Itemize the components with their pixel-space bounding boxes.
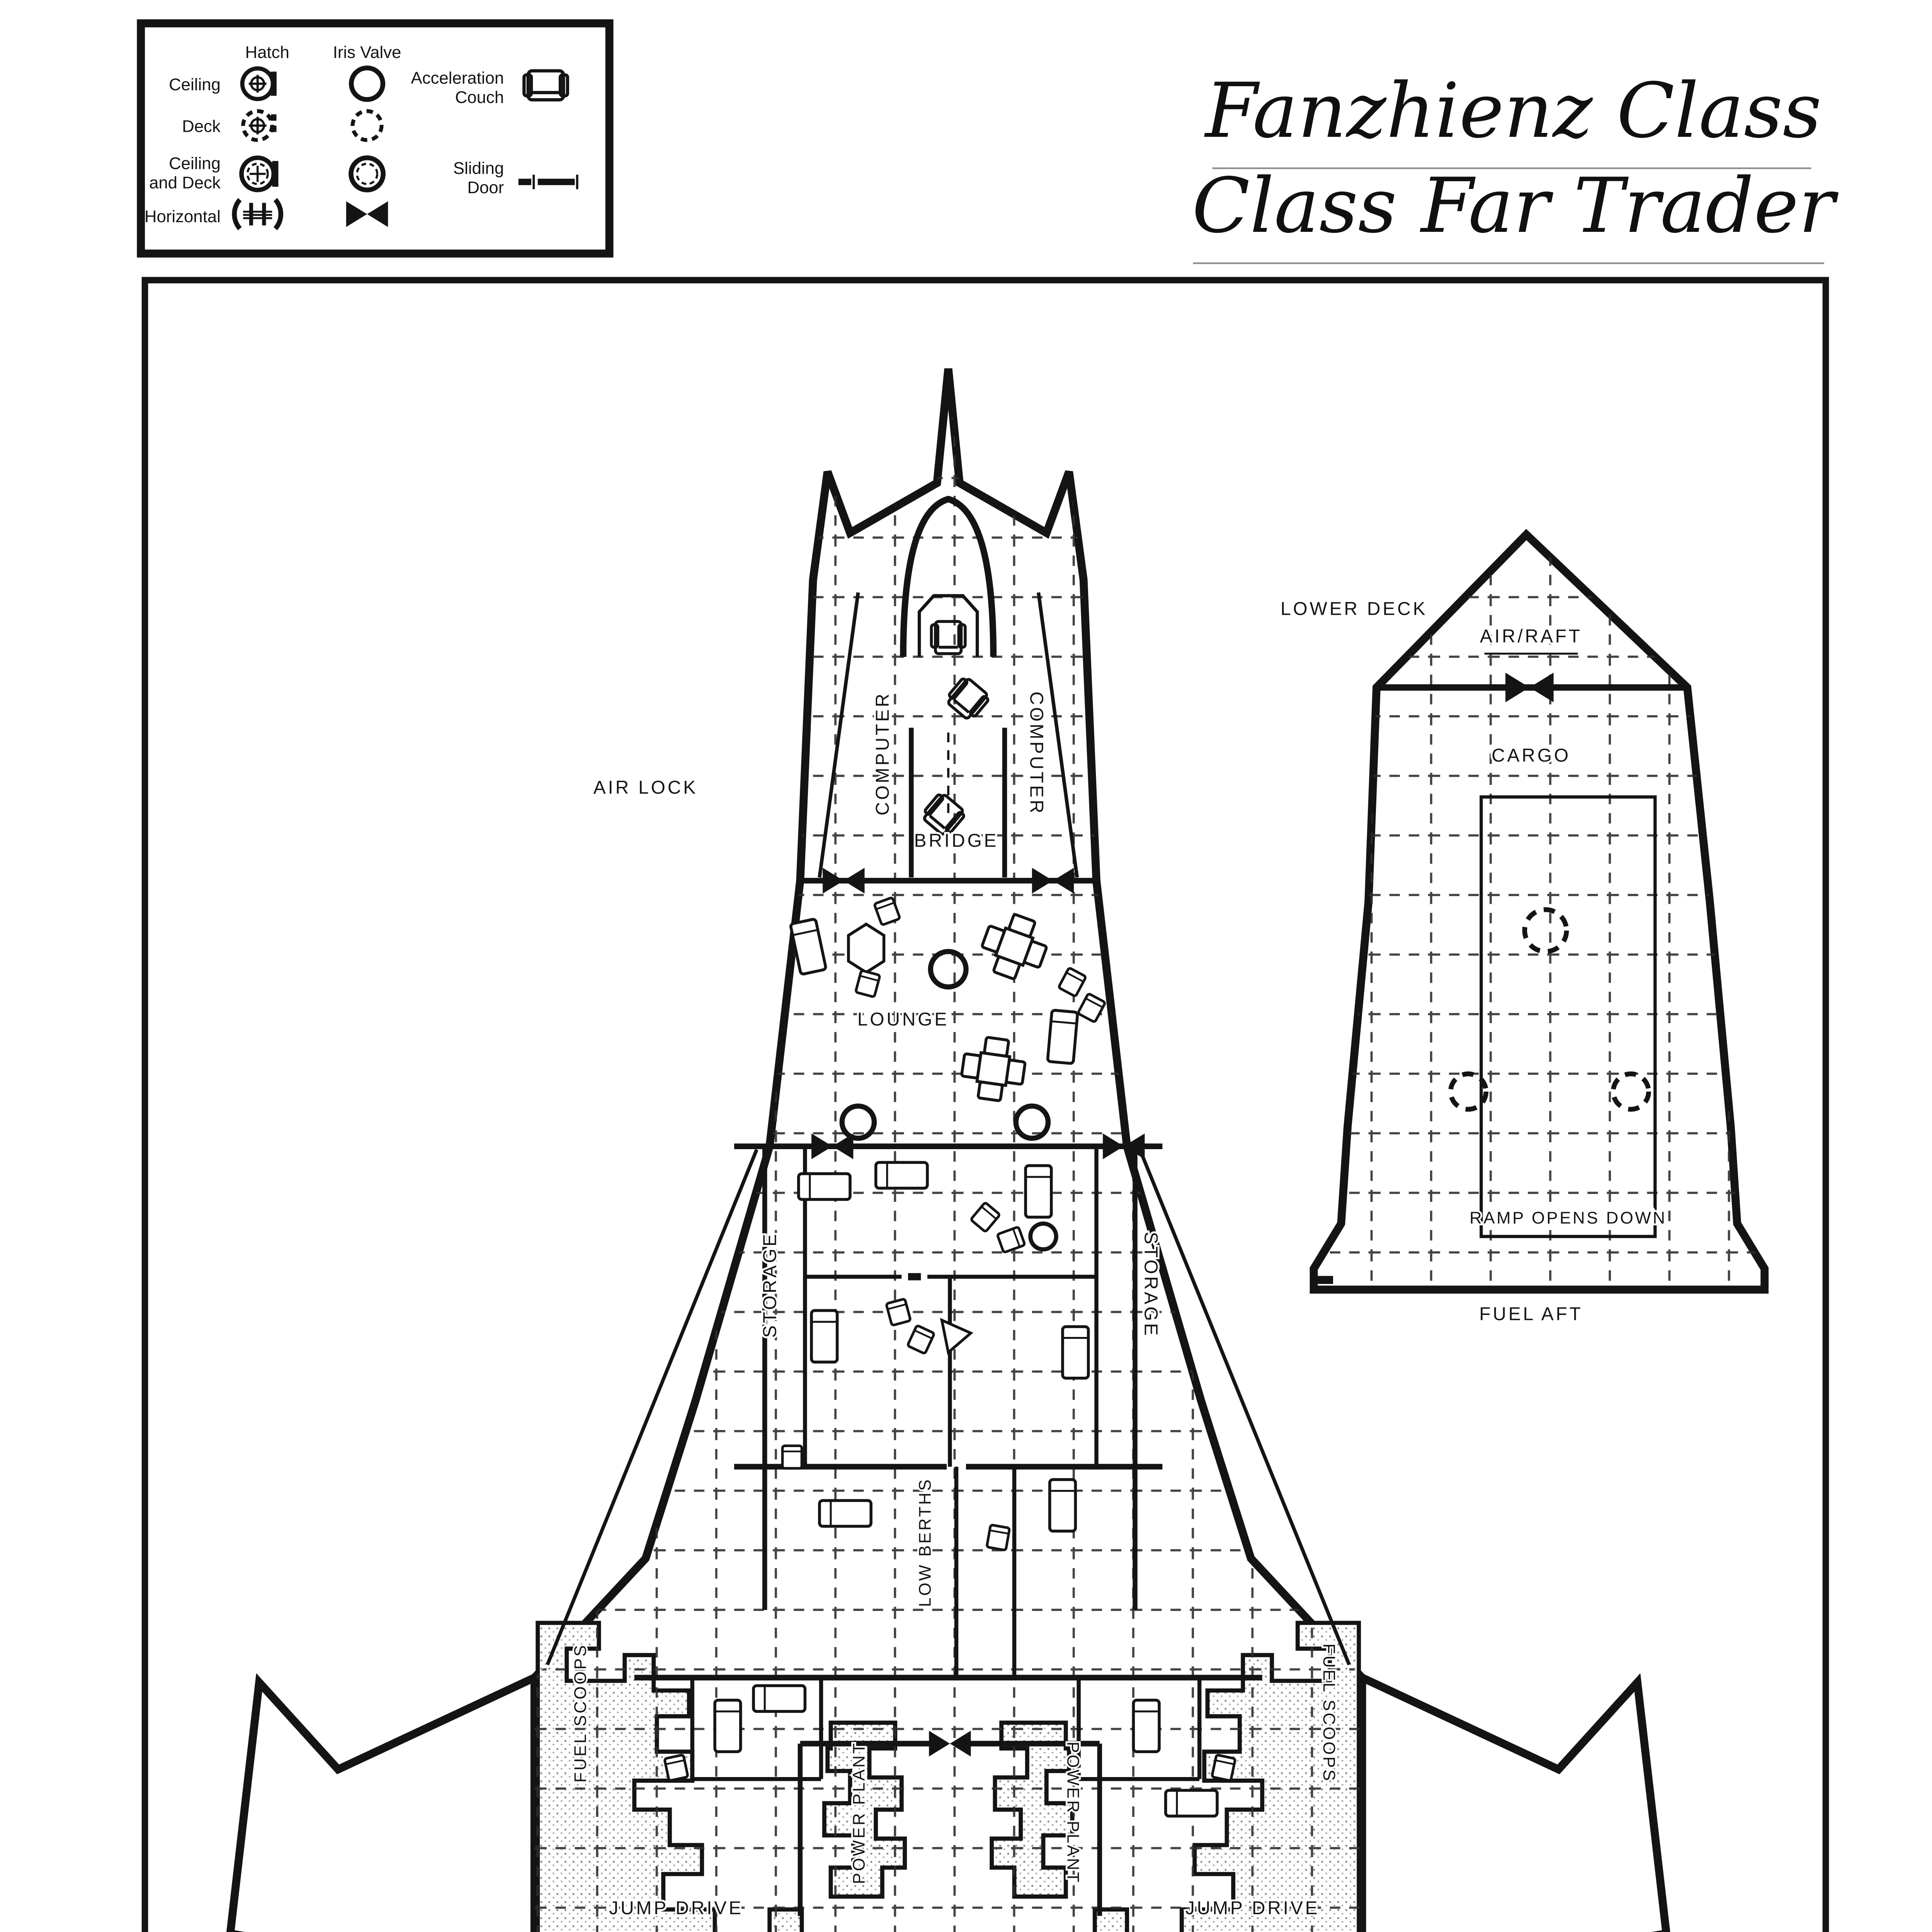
- air-lock-label: AIR LOCK: [594, 777, 698, 798]
- computer-right-label: COMPUTER: [1026, 692, 1047, 816]
- low-berths-label: LOW BERTHS: [915, 1478, 934, 1607]
- right-wing-outline: [1362, 1678, 1667, 1932]
- storage-right-label: STORAGE: [1141, 1232, 1161, 1338]
- lounge-sofa-icon: [1048, 1010, 1078, 1064]
- storage-left-label: STORAGE: [760, 1232, 780, 1338]
- lounge-label: LOUNGE: [857, 1009, 949, 1030]
- lower-deck-label: LOWER DECK: [1281, 599, 1427, 619]
- scanned-deck-plan-page: Fanzhienz Class Class Far Trader Hatch I…: [0, 0, 1932, 1932]
- power-plant-left-label: POWER PLANT: [850, 1742, 869, 1884]
- power-plant-right-label: POWER PLANT: [1064, 1742, 1083, 1884]
- bridge-label: BRIDGE: [914, 831, 999, 851]
- deck-plan-svg: AIR LOCK COMPUTER COMPUTER BRIDGE LOUNGE…: [0, 0, 1932, 1932]
- jump-drive-left-label: JUMP DRIVE: [609, 1898, 743, 1918]
- fuel-aft-label: FUEL AFT: [1479, 1304, 1583, 1325]
- left-wing-outline: [230, 1678, 535, 1932]
- fuel-scoops-right-label: FUEL SCOOPS: [1320, 1643, 1338, 1782]
- ramp-opens-down-label: RAMP OPENS DOWN: [1469, 1209, 1667, 1228]
- fuel-scoops-left-label: FUEL SCOOPS: [571, 1643, 590, 1782]
- deck-grid: [483, 386, 1417, 1932]
- lower-deck-inset: LOWER DECK AIR/RAFT CARGO RAMP OPENS DOW…: [1281, 534, 1771, 1324]
- cargo-ramp-outline: [1481, 797, 1655, 1237]
- cargo-label: CARGO: [1492, 745, 1571, 766]
- computer-left-label: COMPUTER: [872, 692, 893, 816]
- air-raft-label: AIR/RAFT: [1480, 626, 1582, 647]
- jump-drive-right-label: JUMP DRIVE: [1185, 1898, 1320, 1918]
- lounge-hex-table-icon: [849, 924, 884, 973]
- lounge-chair-icon: [855, 970, 880, 997]
